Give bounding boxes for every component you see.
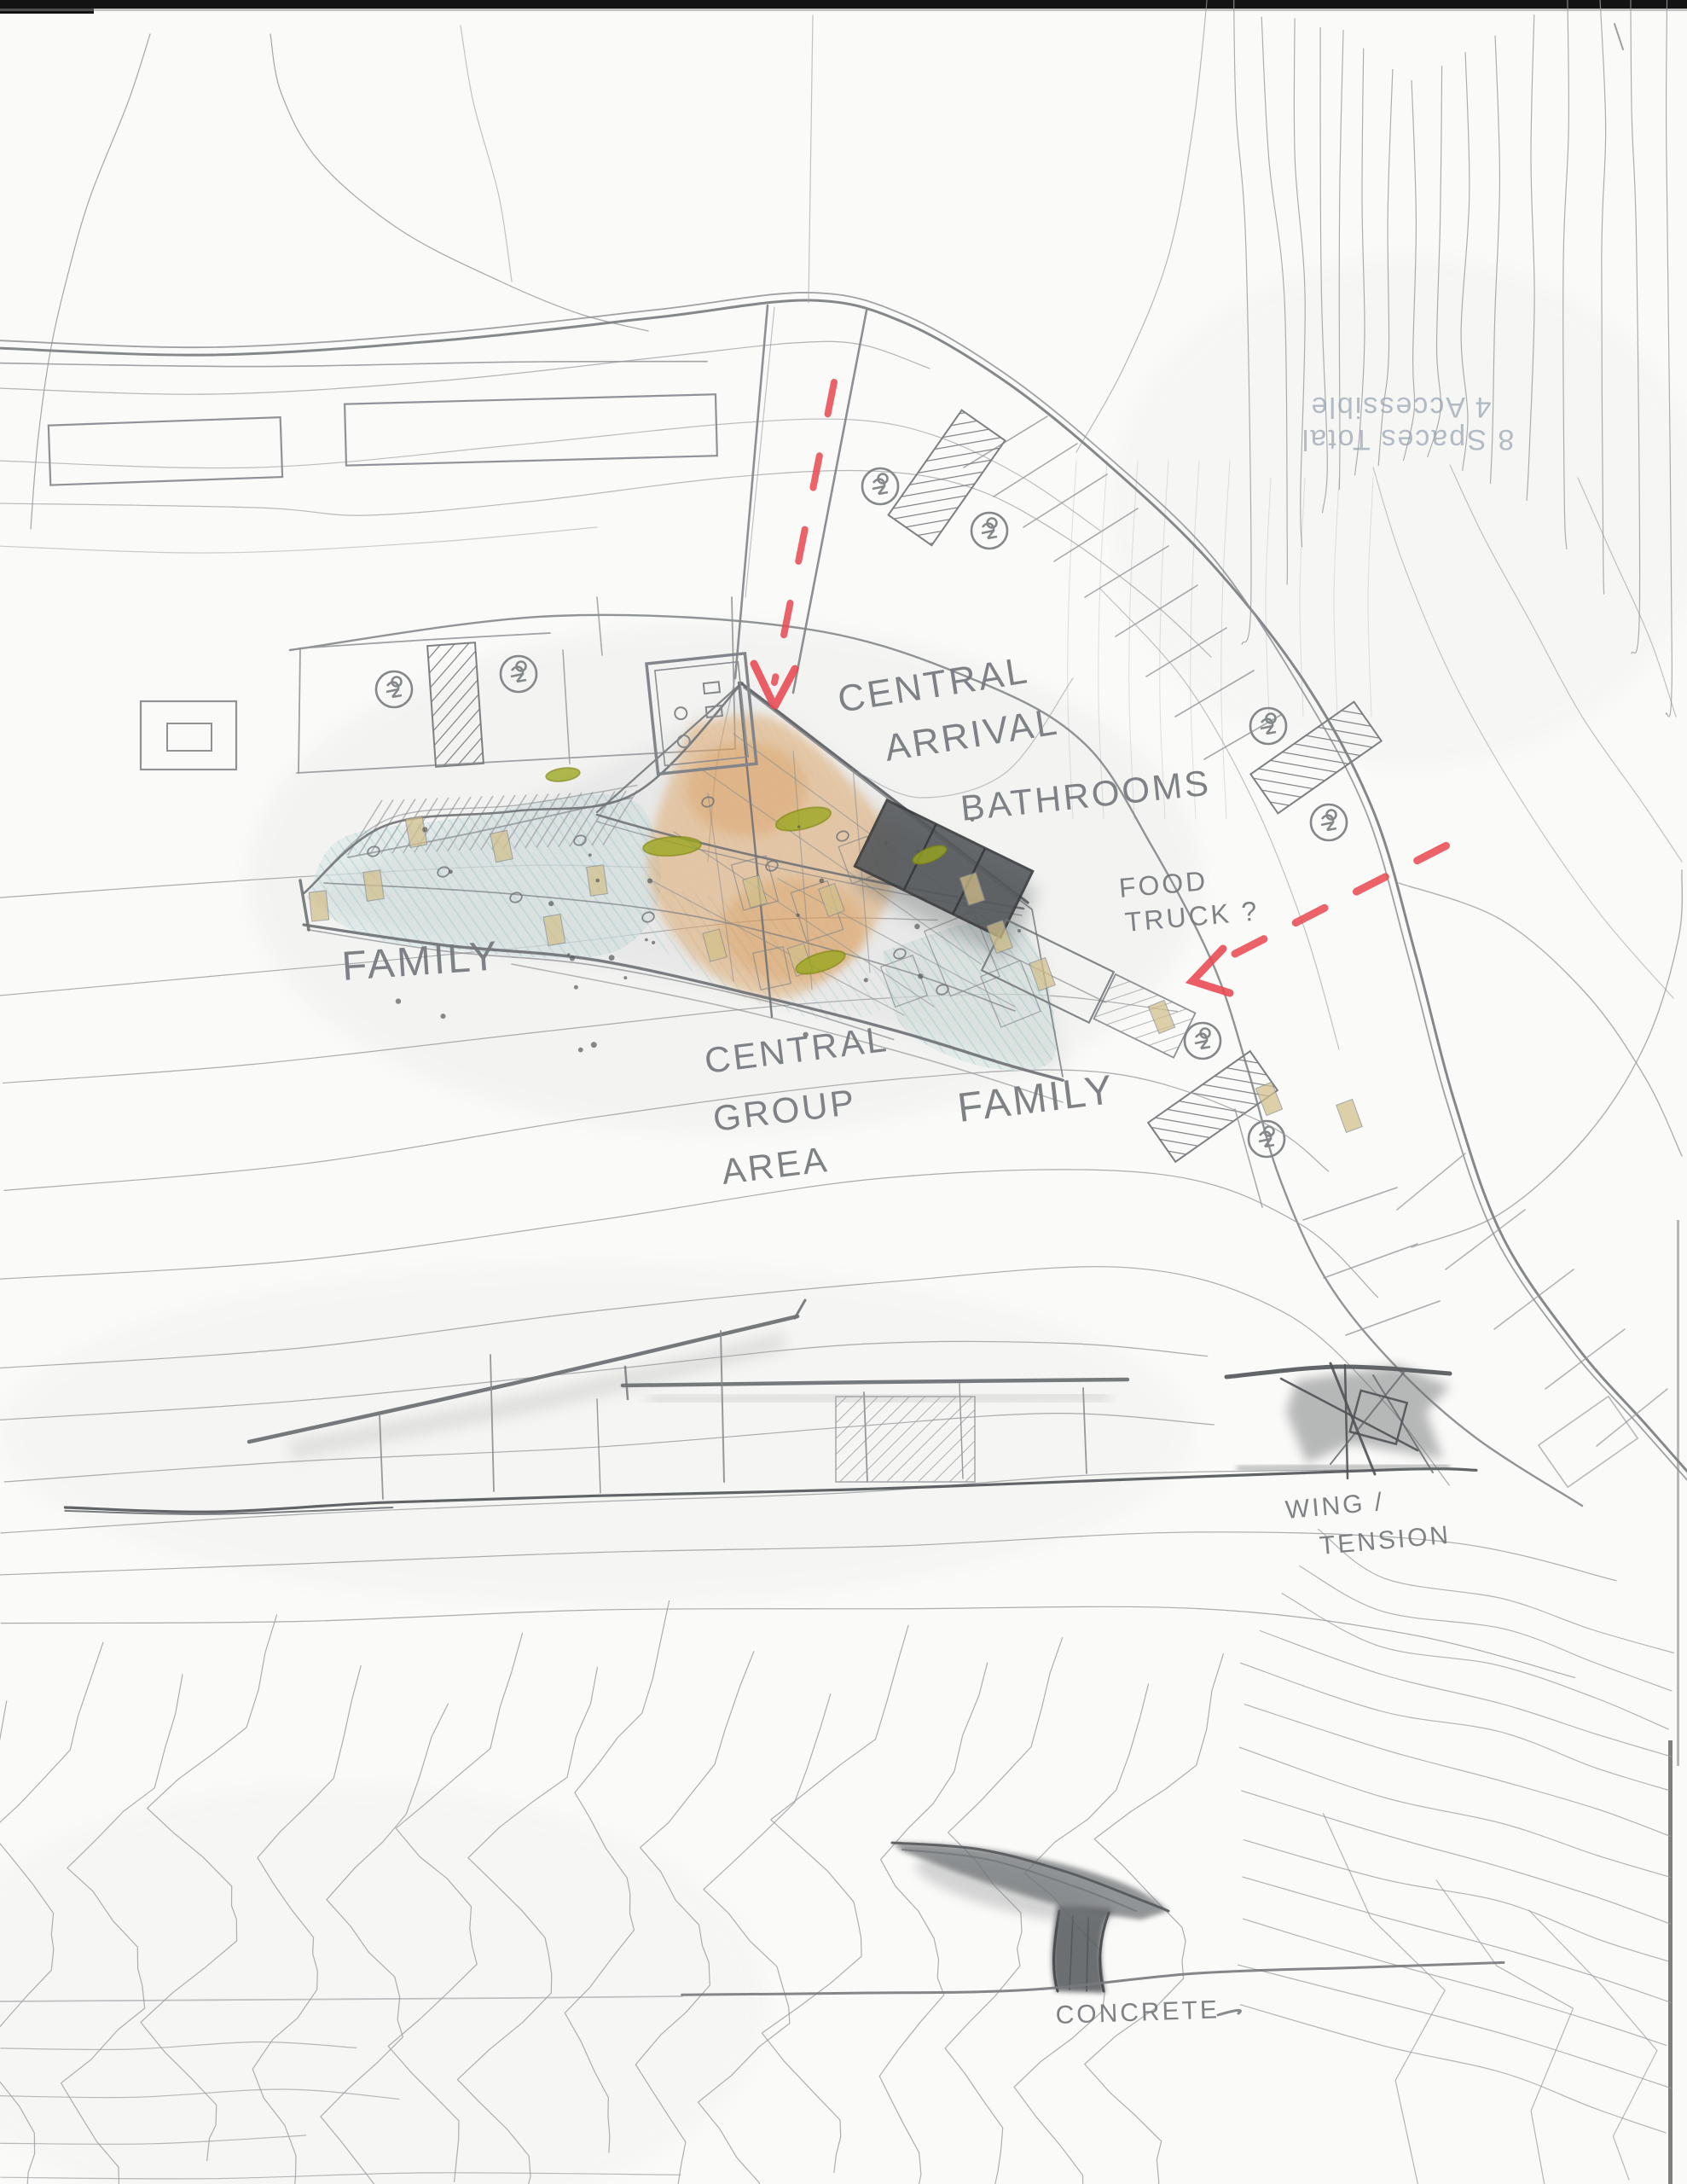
svg-text:4 Accessible: 4 Accessible	[1310, 391, 1492, 423]
svg-text:8 Spaces Total: 8 Spaces Total	[1301, 423, 1514, 456]
svg-text:CONCRETE: CONCRETE	[1055, 1995, 1220, 2030]
